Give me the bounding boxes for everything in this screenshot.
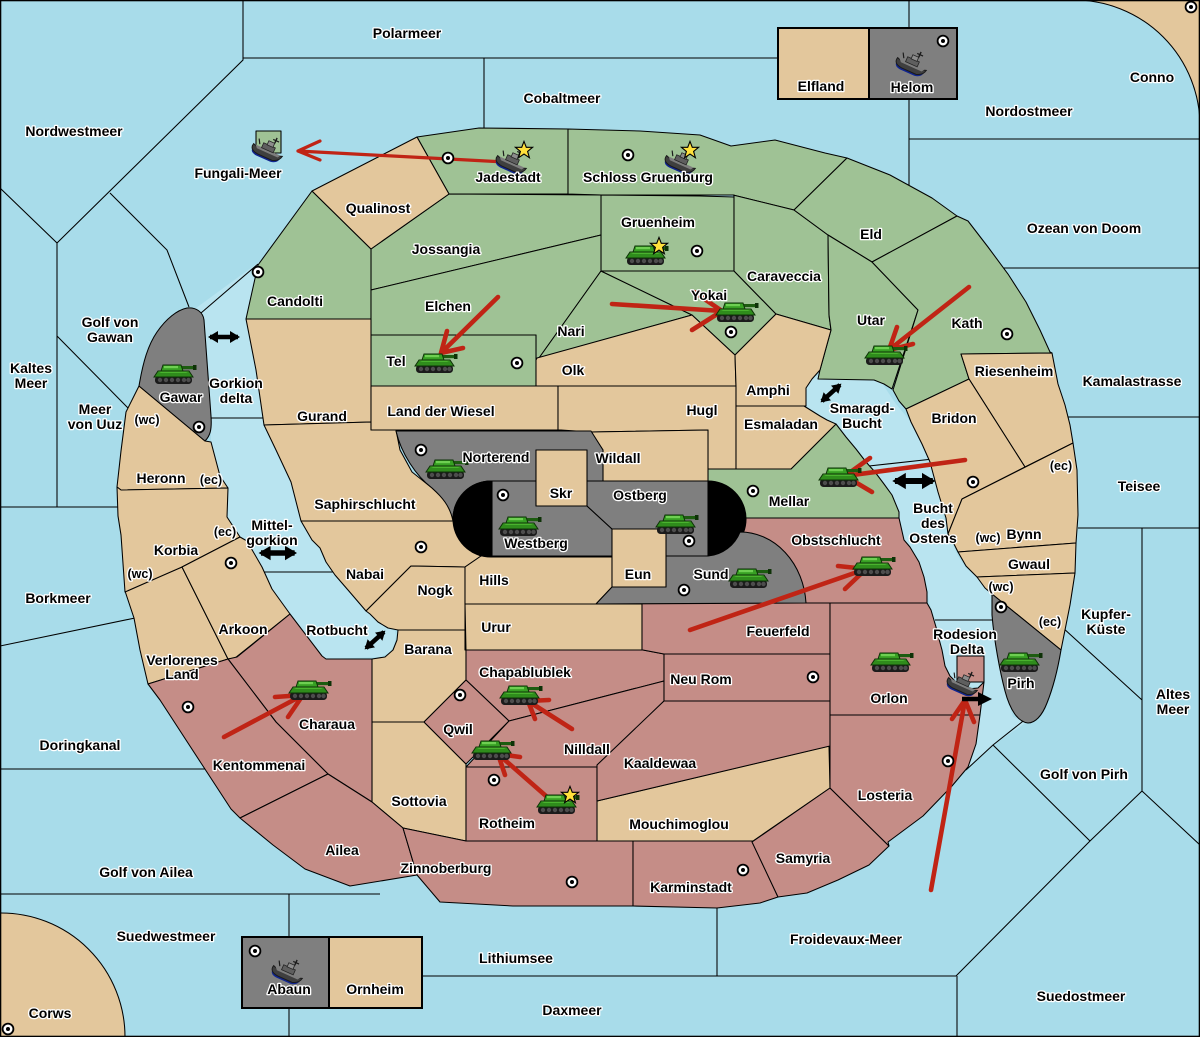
svg-text:Nordwestmeer: Nordwestmeer [25, 123, 123, 139]
svg-text:Elchen: Elchen [425, 298, 471, 314]
svg-text:Rotheim: Rotheim [479, 815, 535, 831]
svg-text:Daxmeer: Daxmeer [542, 1002, 602, 1018]
svg-text:Golf von Pirh: Golf von Pirh [1040, 766, 1128, 782]
svg-text:Chapablublek: Chapablublek [479, 664, 571, 680]
svg-text:Lithiumsee: Lithiumsee [479, 950, 553, 966]
svg-text:Cobaltmeer: Cobaltmeer [523, 90, 601, 106]
svg-text:Kamalastrasse: Kamalastrasse [1083, 373, 1182, 389]
svg-text:Amphi: Amphi [746, 382, 790, 398]
svg-text:von Uuz: von Uuz [68, 416, 122, 432]
svg-text:Jadestadt: Jadestadt [475, 169, 541, 185]
svg-text:Charaua: Charaua [299, 716, 355, 732]
svg-text:Karminstadt: Karminstadt [650, 879, 732, 895]
svg-text:Gawan: Gawan [87, 329, 133, 345]
svg-text:Altes: Altes [1156, 686, 1190, 702]
svg-text:Abaun: Abaun [267, 981, 311, 997]
svg-text:(wc): (wc) [135, 413, 160, 427]
svg-text:Mellar: Mellar [769, 493, 810, 509]
svg-text:Korbia: Korbia [154, 542, 199, 558]
svg-text:Urur: Urur [481, 619, 511, 635]
svg-text:Bynn: Bynn [1007, 526, 1042, 542]
svg-text:Helom: Helom [891, 79, 934, 95]
svg-text:Golf von Ailea: Golf von Ailea [99, 864, 193, 880]
svg-text:Kentommenai: Kentommenai [213, 757, 306, 773]
svg-text:Bridon: Bridon [931, 410, 976, 426]
svg-text:Conno: Conno [1130, 69, 1174, 85]
svg-text:Olk: Olk [562, 362, 585, 378]
svg-text:Suedostmeer: Suedostmeer [1037, 988, 1126, 1004]
svg-text:Ozean von Doom: Ozean von Doom [1027, 220, 1141, 236]
svg-text:Hills: Hills [479, 572, 509, 588]
svg-text:(wc): (wc) [128, 567, 153, 581]
svg-text:Mittel-: Mittel- [251, 517, 293, 533]
svg-text:Hugl: Hugl [686, 402, 717, 418]
svg-text:Orlon: Orlon [870, 690, 907, 706]
svg-text:Norterend: Norterend [463, 449, 530, 465]
svg-text:Nilldall: Nilldall [564, 741, 610, 757]
svg-text:Kupfer-: Kupfer- [1081, 606, 1131, 622]
svg-text:Qualinost: Qualinost [346, 200, 411, 216]
svg-text:Ornheim: Ornheim [346, 981, 404, 997]
svg-text:Delta: Delta [950, 641, 984, 657]
svg-text:Eld: Eld [860, 226, 882, 242]
svg-text:des: des [921, 515, 945, 531]
svg-text:Borkmeer: Borkmeer [25, 590, 91, 606]
svg-text:Bucht: Bucht [842, 415, 882, 431]
svg-text:Tel: Tel [386, 353, 405, 369]
svg-text:Meer: Meer [1157, 701, 1190, 717]
svg-text:Pirh: Pirh [1007, 675, 1034, 691]
svg-text:Eun: Eun [625, 566, 651, 582]
svg-text:Jossangia: Jossangia [412, 241, 481, 257]
svg-text:Losteria: Losteria [858, 787, 913, 803]
svg-text:Zinnoberburg: Zinnoberburg [401, 860, 492, 876]
svg-text:Ailea: Ailea [325, 842, 359, 858]
svg-text:(ec): (ec) [214, 525, 236, 539]
svg-text:Rotbucht: Rotbucht [306, 622, 368, 638]
svg-text:Doringkanal: Doringkanal [40, 737, 121, 753]
svg-text:Smaragd-: Smaragd- [830, 400, 895, 416]
svg-text:Utar: Utar [857, 312, 886, 328]
svg-text:Wildall: Wildall [596, 450, 641, 466]
svg-text:Meer: Meer [79, 401, 112, 417]
svg-text:Sund: Sund [694, 566, 729, 582]
svg-text:Land der Wiesel: Land der Wiesel [387, 403, 494, 419]
svg-text:Rodesion: Rodesion [933, 626, 997, 642]
svg-text:(wc): (wc) [976, 531, 1001, 545]
svg-text:Yokai: Yokai [691, 287, 727, 303]
svg-text:Barana: Barana [404, 641, 452, 657]
svg-text:Corws: Corws [29, 1005, 72, 1021]
svg-text:Neu Rom: Neu Rom [670, 671, 731, 687]
svg-text:Nabai: Nabai [346, 566, 384, 582]
svg-text:Suedwestmeer: Suedwestmeer [117, 928, 216, 944]
svg-text:Küste: Küste [1087, 621, 1126, 637]
svg-text:(wc): (wc) [989, 580, 1014, 594]
svg-text:Samyria: Samyria [776, 850, 831, 866]
svg-text:Riesenheim: Riesenheim [975, 363, 1054, 379]
svg-text:Esmaladan: Esmaladan [744, 416, 818, 432]
svg-text:Gorkion: Gorkion [209, 375, 263, 391]
svg-text:gorkion: gorkion [246, 532, 297, 548]
svg-text:(ec): (ec) [1050, 459, 1072, 473]
svg-text:Ostberg: Ostberg [613, 487, 667, 503]
svg-text:Skr: Skr [550, 485, 573, 501]
svg-text:Ostens: Ostens [909, 530, 957, 546]
svg-text:delta: delta [220, 390, 253, 406]
svg-text:Heronn: Heronn [137, 470, 186, 486]
svg-text:Nordostmeer: Nordostmeer [985, 103, 1073, 119]
svg-text:Gawar: Gawar [160, 389, 203, 405]
svg-text:Feuerfeld: Feuerfeld [746, 623, 809, 639]
svg-text:Golf von: Golf von [82, 314, 139, 330]
svg-text:Qwil: Qwil [443, 721, 473, 737]
svg-text:Meer: Meer [15, 375, 48, 391]
svg-text:Polarmeer: Polarmeer [373, 25, 442, 41]
svg-text:(ec): (ec) [200, 473, 222, 487]
svg-text:Schloss Gruenburg: Schloss Gruenburg [583, 169, 713, 185]
svg-text:Kath: Kath [951, 315, 982, 331]
svg-text:Gurand: Gurand [297, 408, 347, 424]
svg-text:Gruenheim: Gruenheim [621, 214, 695, 230]
svg-text:Candolti: Candolti [267, 293, 323, 309]
svg-text:Bucht: Bucht [913, 500, 953, 516]
svg-text:Obstschlucht: Obstschlucht [791, 532, 881, 548]
svg-text:Elfland: Elfland [798, 78, 845, 94]
svg-text:Fungali-Meer: Fungali-Meer [194, 165, 282, 181]
svg-text:Froidevaux-Meer: Froidevaux-Meer [790, 931, 903, 947]
svg-text:Kaltes: Kaltes [10, 360, 52, 376]
svg-text:Nogk: Nogk [418, 582, 453, 598]
svg-text:Mouchimoglou: Mouchimoglou [629, 816, 729, 832]
svg-text:Westberg: Westberg [504, 535, 568, 551]
svg-text:Teisee: Teisee [1118, 478, 1161, 494]
svg-text:Gwaul: Gwaul [1008, 556, 1050, 572]
svg-text:Kaaldewaa: Kaaldewaa [624, 755, 697, 771]
svg-text:Arkoon: Arkoon [219, 621, 268, 637]
svg-text:(ec): (ec) [1039, 615, 1061, 629]
svg-text:Caraveccia: Caraveccia [747, 268, 821, 284]
svg-text:Saphirschlucht: Saphirschlucht [314, 496, 415, 512]
svg-text:Sottovia: Sottovia [391, 793, 446, 809]
svg-text:Nari: Nari [557, 323, 584, 339]
svg-text:Land: Land [165, 666, 198, 682]
